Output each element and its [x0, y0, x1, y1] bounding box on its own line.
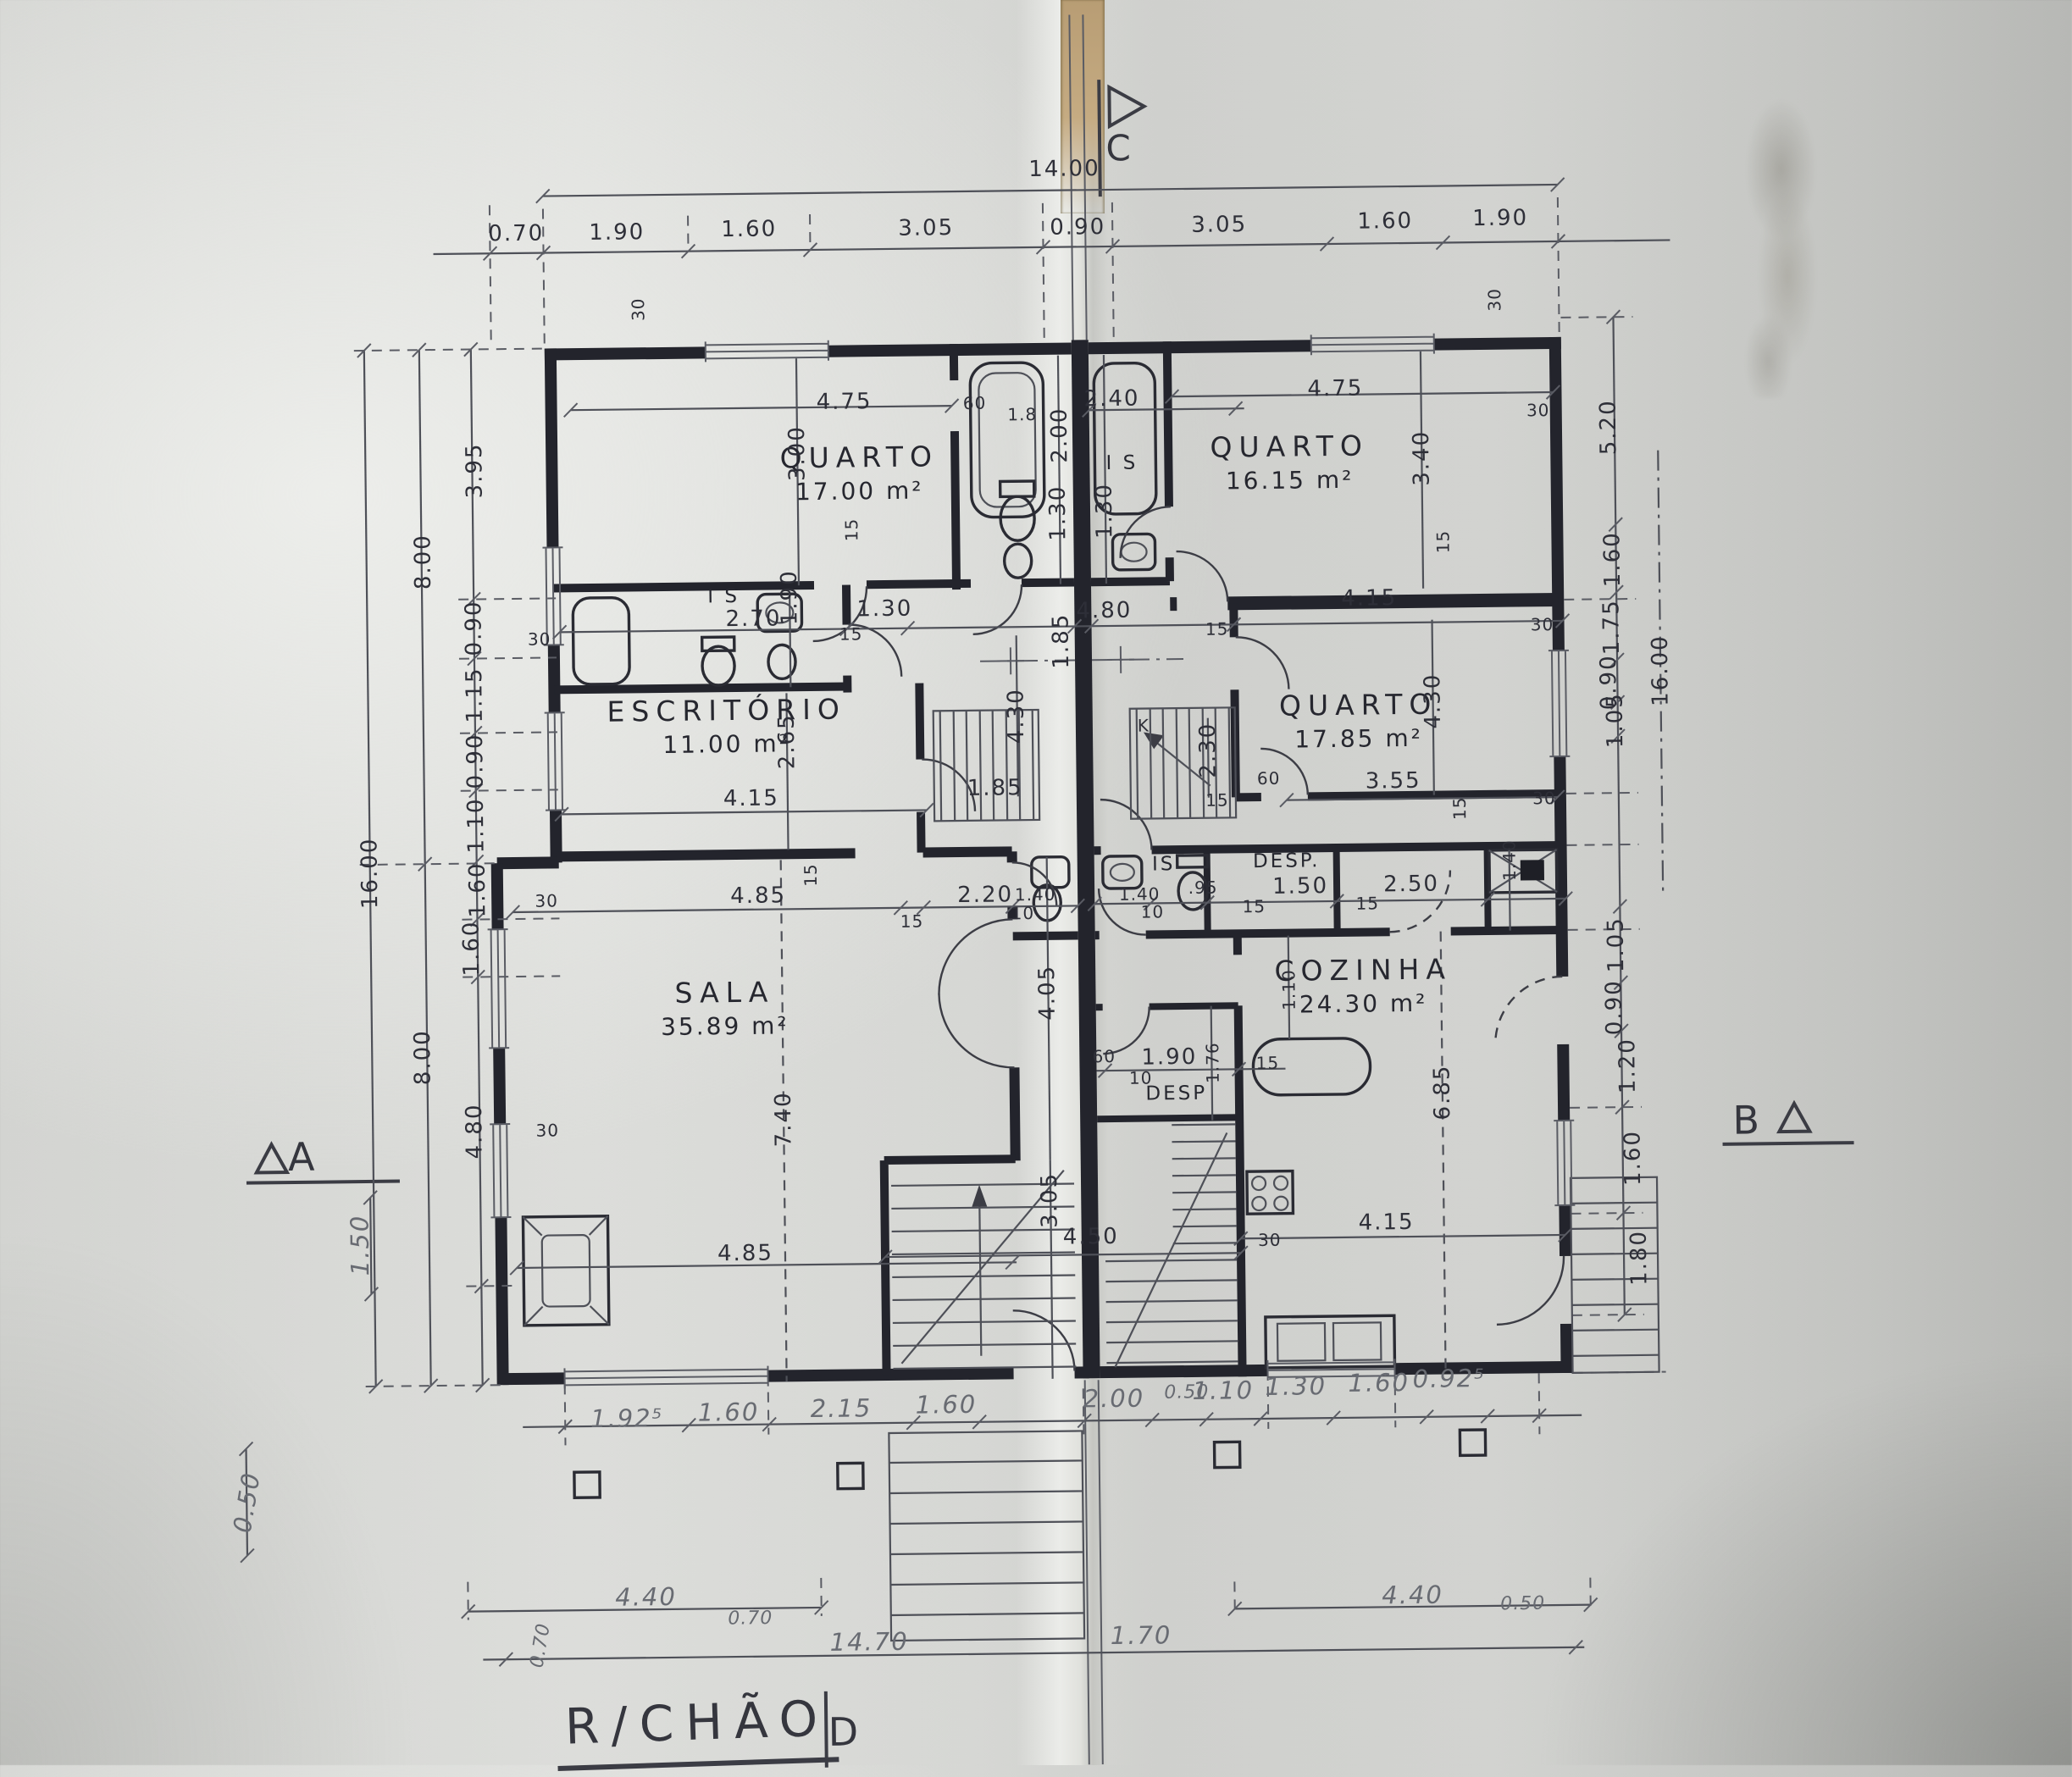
dimension-label: 16.00: [1648, 634, 1674, 706]
dimension-label: 1.60: [465, 861, 491, 917]
room-label: ESCRITÓRIO11.00 m²: [607, 693, 846, 760]
dimension-label: 30: [1484, 288, 1504, 312]
dimension-label: 2.65: [774, 713, 801, 769]
dimension-label: 0.70: [728, 1608, 773, 1630]
dimension-label: 1.60: [1599, 531, 1626, 587]
dimension-label: 0.90: [1601, 979, 1627, 1035]
dimension-label: 30: [535, 890, 558, 911]
dimension-label: 3.05: [1037, 1172, 1063, 1228]
dimension-label: 1.10: [463, 797, 490, 853]
dimension-label: 60: [1092, 1046, 1116, 1066]
dimension-label: 3.00: [784, 425, 811, 481]
dimension-label: 3.05: [898, 215, 954, 241]
dimension-label: 1.92⁵: [590, 1403, 664, 1433]
dimension-label: 1.05: [1604, 916, 1630, 972]
dimension-label: 4.75: [1307, 376, 1363, 402]
room-label: COZINHA24.30 m²: [1274, 952, 1452, 1018]
dimension-label: 1.60: [1357, 208, 1413, 235]
dimension-label: 60: [963, 393, 987, 413]
dimension-label: K: [1138, 715, 1150, 735]
dimension-label: 1.40: [1499, 839, 1520, 881]
dimension-label: 0.70: [527, 1622, 555, 1669]
dimension-label: 2.20: [957, 882, 1013, 908]
dimension-label: 7.40: [771, 1091, 797, 1147]
dimension-label: 4.85: [717, 1241, 773, 1267]
dimension-label: 8.00: [410, 534, 436, 590]
dimension-label: 10: [1011, 903, 1035, 923]
section-marker-a: A: [288, 1134, 315, 1180]
dimension-label: 15: [1205, 618, 1229, 639]
room-label: I S: [1105, 452, 1138, 474]
room-name: DESP: [1145, 1082, 1207, 1105]
dimension-label: 30: [1258, 1230, 1282, 1250]
room-name: QUARTO: [1279, 688, 1438, 722]
dimension-label: 2.70: [725, 606, 781, 632]
dimension-label: 1.05: [1602, 692, 1628, 748]
dimension-label: 15: [839, 623, 863, 644]
dimension-label: 4.50: [1063, 1224, 1119, 1250]
dimension-label: 1.60: [458, 920, 485, 976]
room-label: DESP.: [1253, 850, 1321, 872]
dimension-label: 1.60: [698, 1398, 760, 1427]
dimension-label: 1.90: [777, 569, 803, 625]
dimension-label: 15: [1432, 530, 1453, 554]
dimension-label: 5.20: [1596, 399, 1622, 455]
dimension-label: 1.60: [916, 1390, 978, 1420]
dimension-label: 4.30: [1003, 688, 1029, 744]
dimension-label: 4.80: [1076, 598, 1132, 624]
dimension-label: 1.80: [1626, 1230, 1653, 1286]
room-label: IS: [1152, 853, 1176, 875]
room-label: DESP: [1145, 1082, 1207, 1105]
dimension-label: 2.00: [1047, 407, 1073, 463]
dimension-label: 4.40: [615, 1582, 677, 1612]
dimension-label: 1.30: [856, 596, 912, 623]
dimension-label: 1.30: [1045, 485, 1072, 541]
dimension-label: 15: [841, 518, 861, 542]
dimension-label: 1.85: [967, 775, 1023, 801]
dimension-label: 0.90: [1050, 214, 1105, 241]
dimension-label: 1.90: [1141, 1044, 1197, 1071]
dimension-label: 1.30: [1265, 1371, 1327, 1401]
dimension-label: 1.60: [721, 216, 777, 242]
room-name: IS: [1152, 853, 1176, 875]
room-name: I S: [707, 585, 740, 607]
dimension-label: 0.50: [1500, 1593, 1545, 1615]
section-marker-b: B: [1732, 1097, 1759, 1143]
sheet-title: R/CHÃO: [556, 1689, 839, 1771]
dimension-label: 4.40: [1382, 1580, 1443, 1610]
dimension-label: 1.50: [1272, 873, 1328, 900]
label-layer: A B C D R/CHÃO QUARTO17.00 m²QUARTO16.15…: [0, 0, 2072, 1777]
dimension-label: 15: [1449, 796, 1470, 820]
dimension-label: 4.80: [462, 1103, 488, 1159]
dimension-label: 1.76: [1202, 1042, 1223, 1083]
dimension-label: 0.50: [228, 1470, 266, 1535]
room-area: 24.30 m²: [1275, 988, 1453, 1018]
room-name: SALA: [660, 975, 789, 1010]
room-label: I S: [707, 585, 740, 607]
dimension-label: 2.00: [1083, 1384, 1144, 1414]
dimension-label: 2.40: [1083, 386, 1139, 412]
room-area: 11.00 m²: [607, 729, 847, 760]
dimension-label: 0.90: [463, 733, 489, 789]
dimension-label: 1.70: [1111, 1620, 1172, 1650]
dimension-label: 30: [535, 1120, 559, 1140]
dimension-label: 3.05: [1191, 212, 1247, 238]
room-name: ESCRITÓRIO: [607, 693, 846, 728]
dimension-label: 4.15: [1358, 1210, 1414, 1236]
dimension-label: 10: [1141, 901, 1165, 922]
dimension-label: 1.15: [462, 667, 488, 722]
dimension-label: .95: [1188, 877, 1218, 898]
dimension-label: 15: [1205, 789, 1229, 810]
dimension-label: 0.92⁵: [1412, 1364, 1486, 1393]
dimension-label: 30: [528, 628, 551, 649]
dimension-label: 2.30: [1195, 722, 1222, 778]
dimension-label: 1.8: [1007, 404, 1037, 424]
dimension-label: 3.95: [462, 442, 488, 498]
room-area: 35.89 m²: [661, 1011, 789, 1041]
dimension-label: 4.05: [1034, 965, 1061, 1021]
dimension-label: 1.75: [1598, 599, 1625, 655]
dimension-label: 1.30: [1092, 483, 1118, 539]
dimension-label: 30: [1532, 788, 1556, 808]
room-label: SALA35.89 m²: [660, 975, 789, 1041]
room-name: I S: [1105, 452, 1138, 474]
dimension-label: 1.10: [1278, 969, 1299, 1010]
dimension-label: 1.50: [345, 1215, 374, 1276]
dimension-label: 30: [628, 297, 648, 321]
dimension-label: 1.90: [589, 219, 645, 246]
dimension-label: 16.00: [357, 838, 383, 910]
room-area: 16.15 m²: [1211, 466, 1370, 495]
dimension-label: 10: [1129, 1067, 1153, 1088]
dimension-label: 4.75: [816, 389, 872, 415]
dimension-label: 14.70: [829, 1627, 908, 1657]
dimension-label: 2.15: [811, 1393, 873, 1423]
dimension-label: 4.15: [1341, 585, 1397, 612]
dimension-label: 15: [1242, 896, 1266, 916]
dimension-label: 1.90: [1472, 205, 1528, 231]
room-name: COZINHA: [1274, 952, 1452, 987]
dimension-label: 4.15: [723, 785, 779, 811]
room-name: QUARTO: [1210, 429, 1369, 464]
dimension-label: 4.85: [730, 883, 786, 909]
section-marker-c: C: [1105, 127, 1131, 169]
dimension-label: 14.00: [1028, 156, 1100, 182]
dimension-label: 15: [900, 911, 924, 932]
dimension-label: 3.55: [1366, 768, 1421, 794]
dimension-label: 0.90: [461, 600, 487, 656]
dimension-label: 1.40: [1015, 884, 1056, 905]
dimension-label: 30: [1531, 614, 1554, 634]
dimension-label: 15: [1256, 1053, 1280, 1073]
room-area: 17.85 m²: [1279, 724, 1438, 754]
dimension-label: 15: [801, 863, 821, 887]
dimension-label: 2.50: [1383, 872, 1439, 898]
dimension-label: 0.70: [488, 221, 544, 247]
floorplan: A B C D R/CHÃO QUARTO17.00 m²QUARTO16.15…: [0, 0, 2072, 1777]
dimension-label: 1.20: [1615, 1038, 1641, 1093]
dimension-label: 8.00: [410, 1029, 436, 1085]
dimension-label: 15: [1355, 893, 1379, 913]
dimension-label: 4.30: [1420, 673, 1446, 729]
dimension-label: 1.60: [1348, 1368, 1410, 1398]
dimension-label: 60: [1257, 768, 1281, 789]
room-label: QUARTO17.85 m²: [1279, 688, 1438, 754]
dimension-label: 1.85: [1048, 613, 1074, 669]
dimension-label: 1.10: [1192, 1376, 1254, 1405]
dimension-label: 30: [1526, 400, 1550, 420]
dimension-label: 1.60: [1620, 1130, 1646, 1186]
dimension-label: 6.85: [1429, 1064, 1455, 1120]
dimension-label: 3.40: [1409, 430, 1435, 486]
room-label: QUARTO16.15 m²: [1210, 429, 1369, 495]
room-name: DESP.: [1253, 850, 1321, 872]
